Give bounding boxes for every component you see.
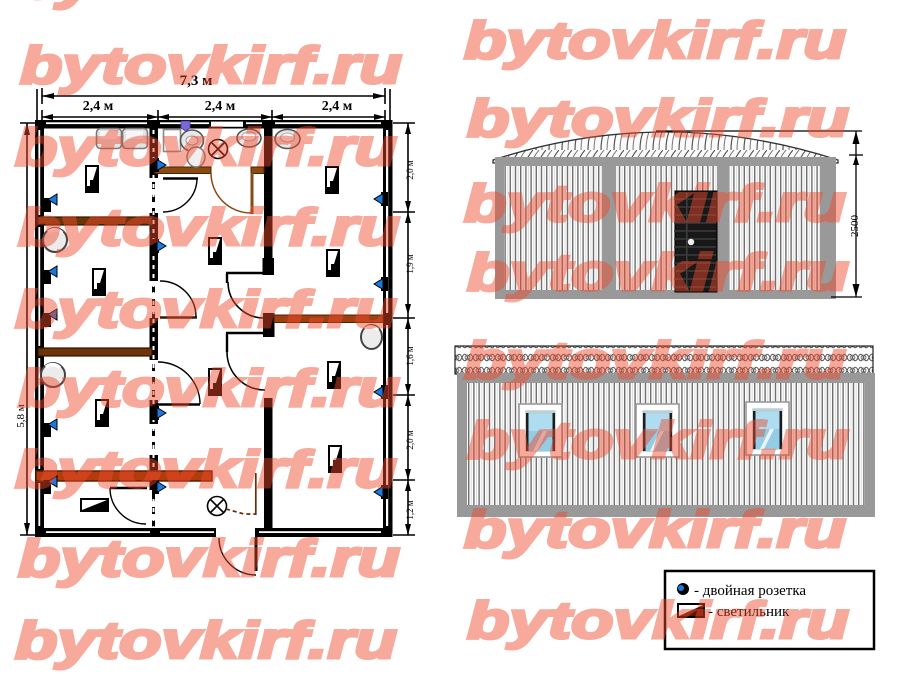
svg-text:2,0 м: 2,0 м [405, 430, 415, 450]
svg-text:1,2 м: 1,2 м [405, 500, 415, 520]
svg-text:2,4 м: 2,4 м [83, 99, 114, 114]
svg-text:2,4 м: 2,4 м [322, 99, 353, 114]
svg-text:2,0 м: 2,0 м [405, 160, 415, 180]
svg-text:- светильник: - светильник [708, 604, 790, 620]
svg-text:5,8 м: 5,8 м [15, 404, 27, 428]
svg-text:1,9 м: 1,9 м [405, 254, 415, 274]
svg-text:- двойная розетка: - двойная розетка [694, 583, 806, 599]
svg-text:2,4 м: 2,4 м [205, 99, 236, 114]
svg-text:7,3 м: 7,3 м [180, 73, 213, 89]
svg-text:2500: 2500 [849, 215, 861, 238]
svg-text:1,6 м: 1,6 м [405, 346, 415, 366]
